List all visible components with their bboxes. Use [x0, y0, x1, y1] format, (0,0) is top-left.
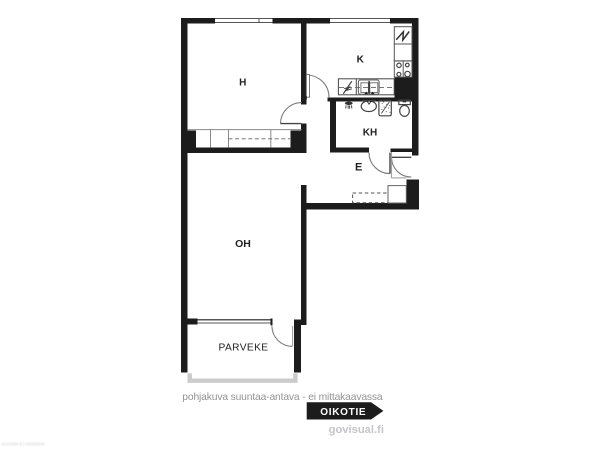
svg-text:OIKOTIE: OIKOTIE [320, 407, 366, 418]
svg-text:KH: KH [363, 128, 377, 139]
svg-text:govisual.fi: govisual.fi [329, 424, 384, 436]
svg-text:H: H [239, 78, 246, 89]
svg-text:OH: OH [235, 238, 251, 250]
svg-text:E: E [355, 161, 362, 173]
svg-text:K: K [357, 55, 365, 66]
svg-text:PARVEKE: PARVEKE [219, 343, 269, 354]
svg-text:pohjakuva suuntaa-antava - ei: pohjakuva suuntaa-antava - ei mittakaava… [182, 392, 383, 403]
svg-text:0123456-8 | 00000000: 0123456-8 | 00000000 [2, 441, 46, 446]
